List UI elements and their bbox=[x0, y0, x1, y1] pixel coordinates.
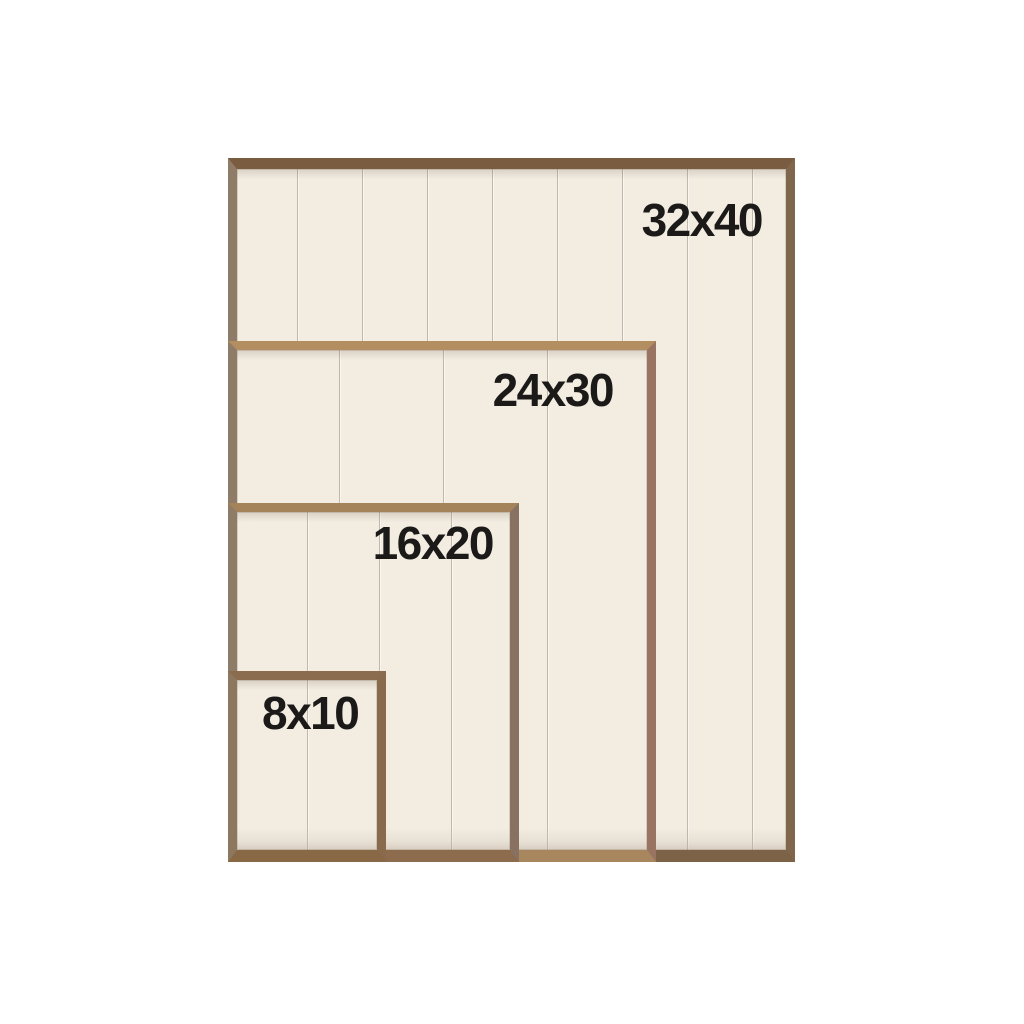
size-label-16x20: 16x20 bbox=[373, 520, 493, 566]
frame-8x10: 8x10 bbox=[228, 671, 386, 862]
size-comparison-image: 32x40 24x30 16x20 8x10 bbox=[0, 0, 1024, 1024]
size-label-8x10: 8x10 bbox=[262, 690, 358, 736]
size-label-32x40: 32x40 bbox=[642, 197, 762, 243]
size-label-24x30: 24x30 bbox=[493, 367, 613, 413]
